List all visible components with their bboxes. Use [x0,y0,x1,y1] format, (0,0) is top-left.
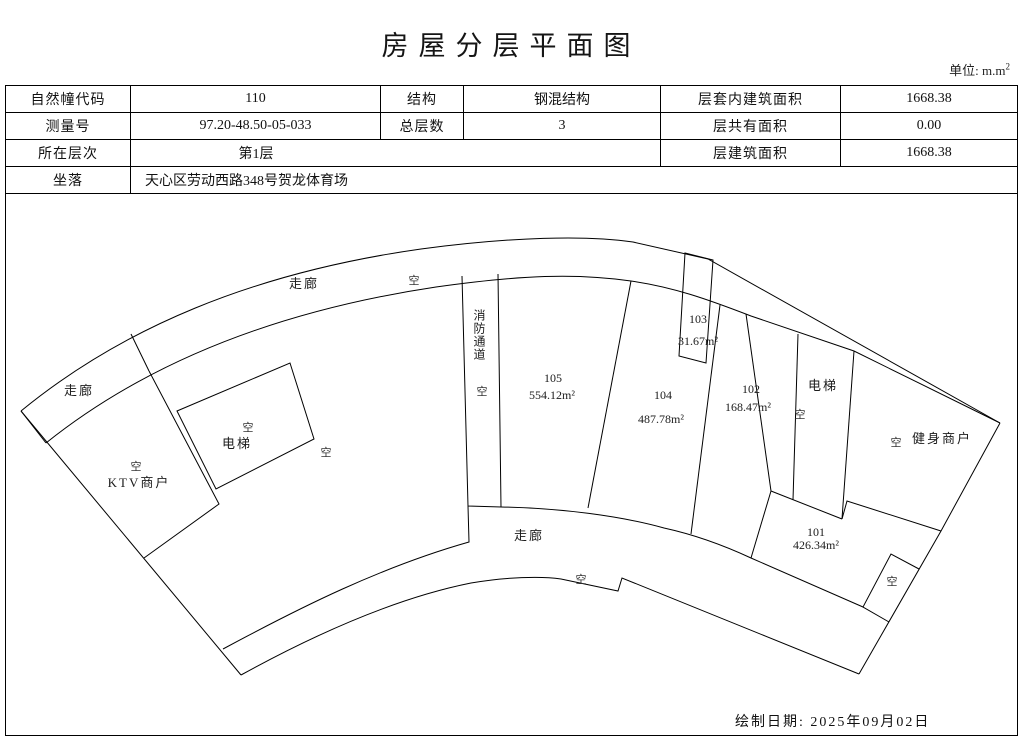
void-middle: 空 [321,445,332,459]
field-floor-level-label: 所在层次 [6,140,131,167]
unit-note: 单位: m.m2 [949,60,1010,79]
field-inner-area-value: 1668.38 [841,86,1018,113]
field-floor-area-label: 层建筑面积 [661,140,841,167]
field-building-code-label: 自然幢代码 [6,86,131,113]
fire-passage-label: 消防通道 [472,309,486,361]
field-building-code-value: 110 [131,86,381,113]
bottom-corridor-top-arc-right [501,507,863,607]
room-102-area: 168.47m² [725,400,771,414]
ktv-room-walls [144,371,219,558]
left-outer-diagonal-wall [21,411,241,675]
lift-right-label: 电梯 [808,378,838,393]
floor-level-text: 第1层 [131,143,381,163]
field-survey-no-label: 测量号 [6,113,131,140]
void-box-label: 空 [887,574,898,588]
void-box-bottom-right [863,554,919,622]
void-marker-top: 空 [409,273,420,287]
field-total-floors-label: 总层数 [381,113,464,140]
field-location-label: 坐落 [6,167,131,194]
field-structure-value: 钢混结构 [464,86,661,113]
field-floor-area-value: 1668.38 [841,140,1018,167]
room-102-number: 102 [742,382,760,396]
room-105-number: 105 [544,371,562,385]
info-table: 自然幢代码 110 结构 钢混结构 层套内建筑面积 1668.38 测量号 97… [5,85,1018,194]
plan-frame: 走廊 空 消防通道 空 105 554.12m² 104 487.78m² 10… [5,193,1018,736]
corridor-divider-left [131,334,149,371]
bottom-corridor-top-arc-left [223,506,469,649]
field-shared-area-label: 层共有面积 [661,113,841,140]
gym-label: 健身商户 [912,431,972,446]
ktv-label: KTV商户 [108,475,171,490]
field-inner-area-label: 层套内建筑面积 [661,86,841,113]
floor-plan-drawing: 走廊 空 消防通道 空 105 554.12m² 104 487.78m² 10… [6,194,1017,735]
unit-text: 单位: m.m [949,63,1005,78]
room-105-area: 554.12m² [529,388,575,402]
outer-arc-wall [21,238,1000,423]
bottom-corridor-bottom-arc [241,577,859,675]
room-101-left-edge [751,491,771,558]
corridor-top-label: 走廊 [289,276,319,291]
field-structure-label: 结构 [381,86,464,113]
void-ktv: 空 [131,459,142,473]
room-101-top-edge [771,491,842,519]
field-location-value: 天心区劳动西路348号贺龙体育场 [131,167,1018,194]
gym-bottom-edge [842,501,941,531]
field-total-floors-value: 3 [464,113,661,140]
room-101-number: 101 [807,525,825,539]
corridor-left-label: 走廊 [64,383,94,398]
page-title: 房屋分层平面图 [0,24,1022,63]
corridor-bottom-label: 走廊 [514,528,544,543]
field-floor-level-value: 第1层 [131,140,661,167]
drawing-date: 绘制日期: 2025年09月02日 [735,711,930,731]
void-gym: 空 [891,435,902,449]
lift-left-label: 电梯 [222,436,252,451]
field-shared-area-value: 0.00 [841,113,1018,140]
room-104-area: 487.78m² [638,412,684,426]
room-104-number: 104 [654,388,672,402]
void-lift-left: 空 [243,420,254,434]
room-101-area: 426.34m² [793,538,839,552]
inner-corridor-arc [46,276,1000,443]
void-lift-right: 空 [795,407,806,421]
floor-plan-document: 房屋分层平面图 单位: m.m2 自然幢代码 110 结构 钢混结构 层套内建筑… [0,0,1022,742]
lift-right-right-wall [842,351,854,519]
room-103-number: 103 [689,312,707,326]
gym-right-edge [859,423,1000,674]
unit-superscript: 2 [1006,62,1011,72]
divider-105-104 [588,281,631,508]
void-bottom-arc: 空 [576,572,587,586]
room-103-area: 31.67m² [678,334,718,348]
void-fire-passage: 空 [477,384,488,398]
field-survey-no-value: 97.20-48.50-05-033 [131,113,381,140]
